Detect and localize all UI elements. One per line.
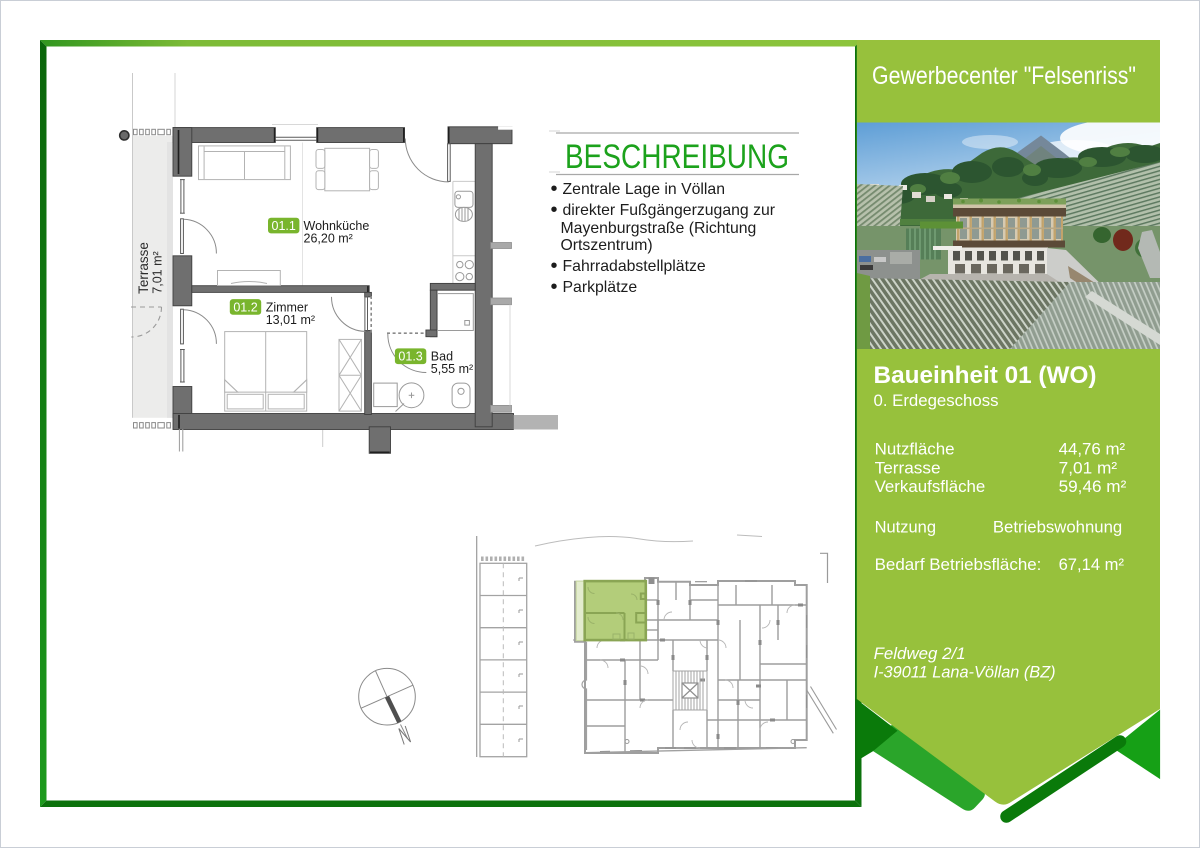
svg-text:7,01 m²: 7,01 m² <box>1059 459 1118 478</box>
svg-text:Terrasse: Terrasse <box>136 242 151 294</box>
svg-text:26,20 m²: 26,20 m² <box>304 232 353 246</box>
svg-text:I-39011 Lana-Völlan (BZ): I-39011 Lana-Völlan (BZ) <box>874 663 1056 682</box>
svg-text:Verkaufsfläche: Verkaufsfläche <box>875 477 986 496</box>
svg-text:59,46 m²: 59,46 m² <box>1059 477 1127 496</box>
svg-text:Gewerbecenter "Felsenriss": Gewerbecenter "Felsenriss" <box>872 62 1136 90</box>
svg-text:Bedarf Betriebsfläche:: Bedarf Betriebsfläche: <box>875 555 1042 574</box>
svg-text:44,76 m²: 44,76 m² <box>1059 440 1126 459</box>
svg-text:Feldweg 2/1: Feldweg 2/1 <box>874 644 966 663</box>
svg-text:13,01 m²: 13,01 m² <box>266 313 315 327</box>
svg-text:01.1: 01.1 <box>272 219 296 233</box>
svg-text:01.3: 01.3 <box>398 350 422 364</box>
svg-text:Baueinheit 01 (WO): Baueinheit 01 (WO) <box>874 362 1097 389</box>
svg-text:Betriebswohnung: Betriebswohnung <box>993 517 1122 536</box>
svg-text:7,01 m²: 7,01 m² <box>151 251 165 293</box>
svg-text:01.2: 01.2 <box>233 300 257 314</box>
svg-text:BESCHREIBUNG: BESCHREIBUNG <box>565 138 789 176</box>
svg-text:Terrasse: Terrasse <box>875 459 941 478</box>
svg-text:67,14 m²: 67,14 m² <box>1059 555 1125 574</box>
svg-text:Nutzung: Nutzung <box>875 517 936 536</box>
svg-text:Nutzfläche: Nutzfläche <box>875 440 955 459</box>
svg-text:5,55 m²: 5,55 m² <box>431 362 473 376</box>
svg-text:0. Erdegeschoss: 0. Erdegeschoss <box>874 391 999 410</box>
